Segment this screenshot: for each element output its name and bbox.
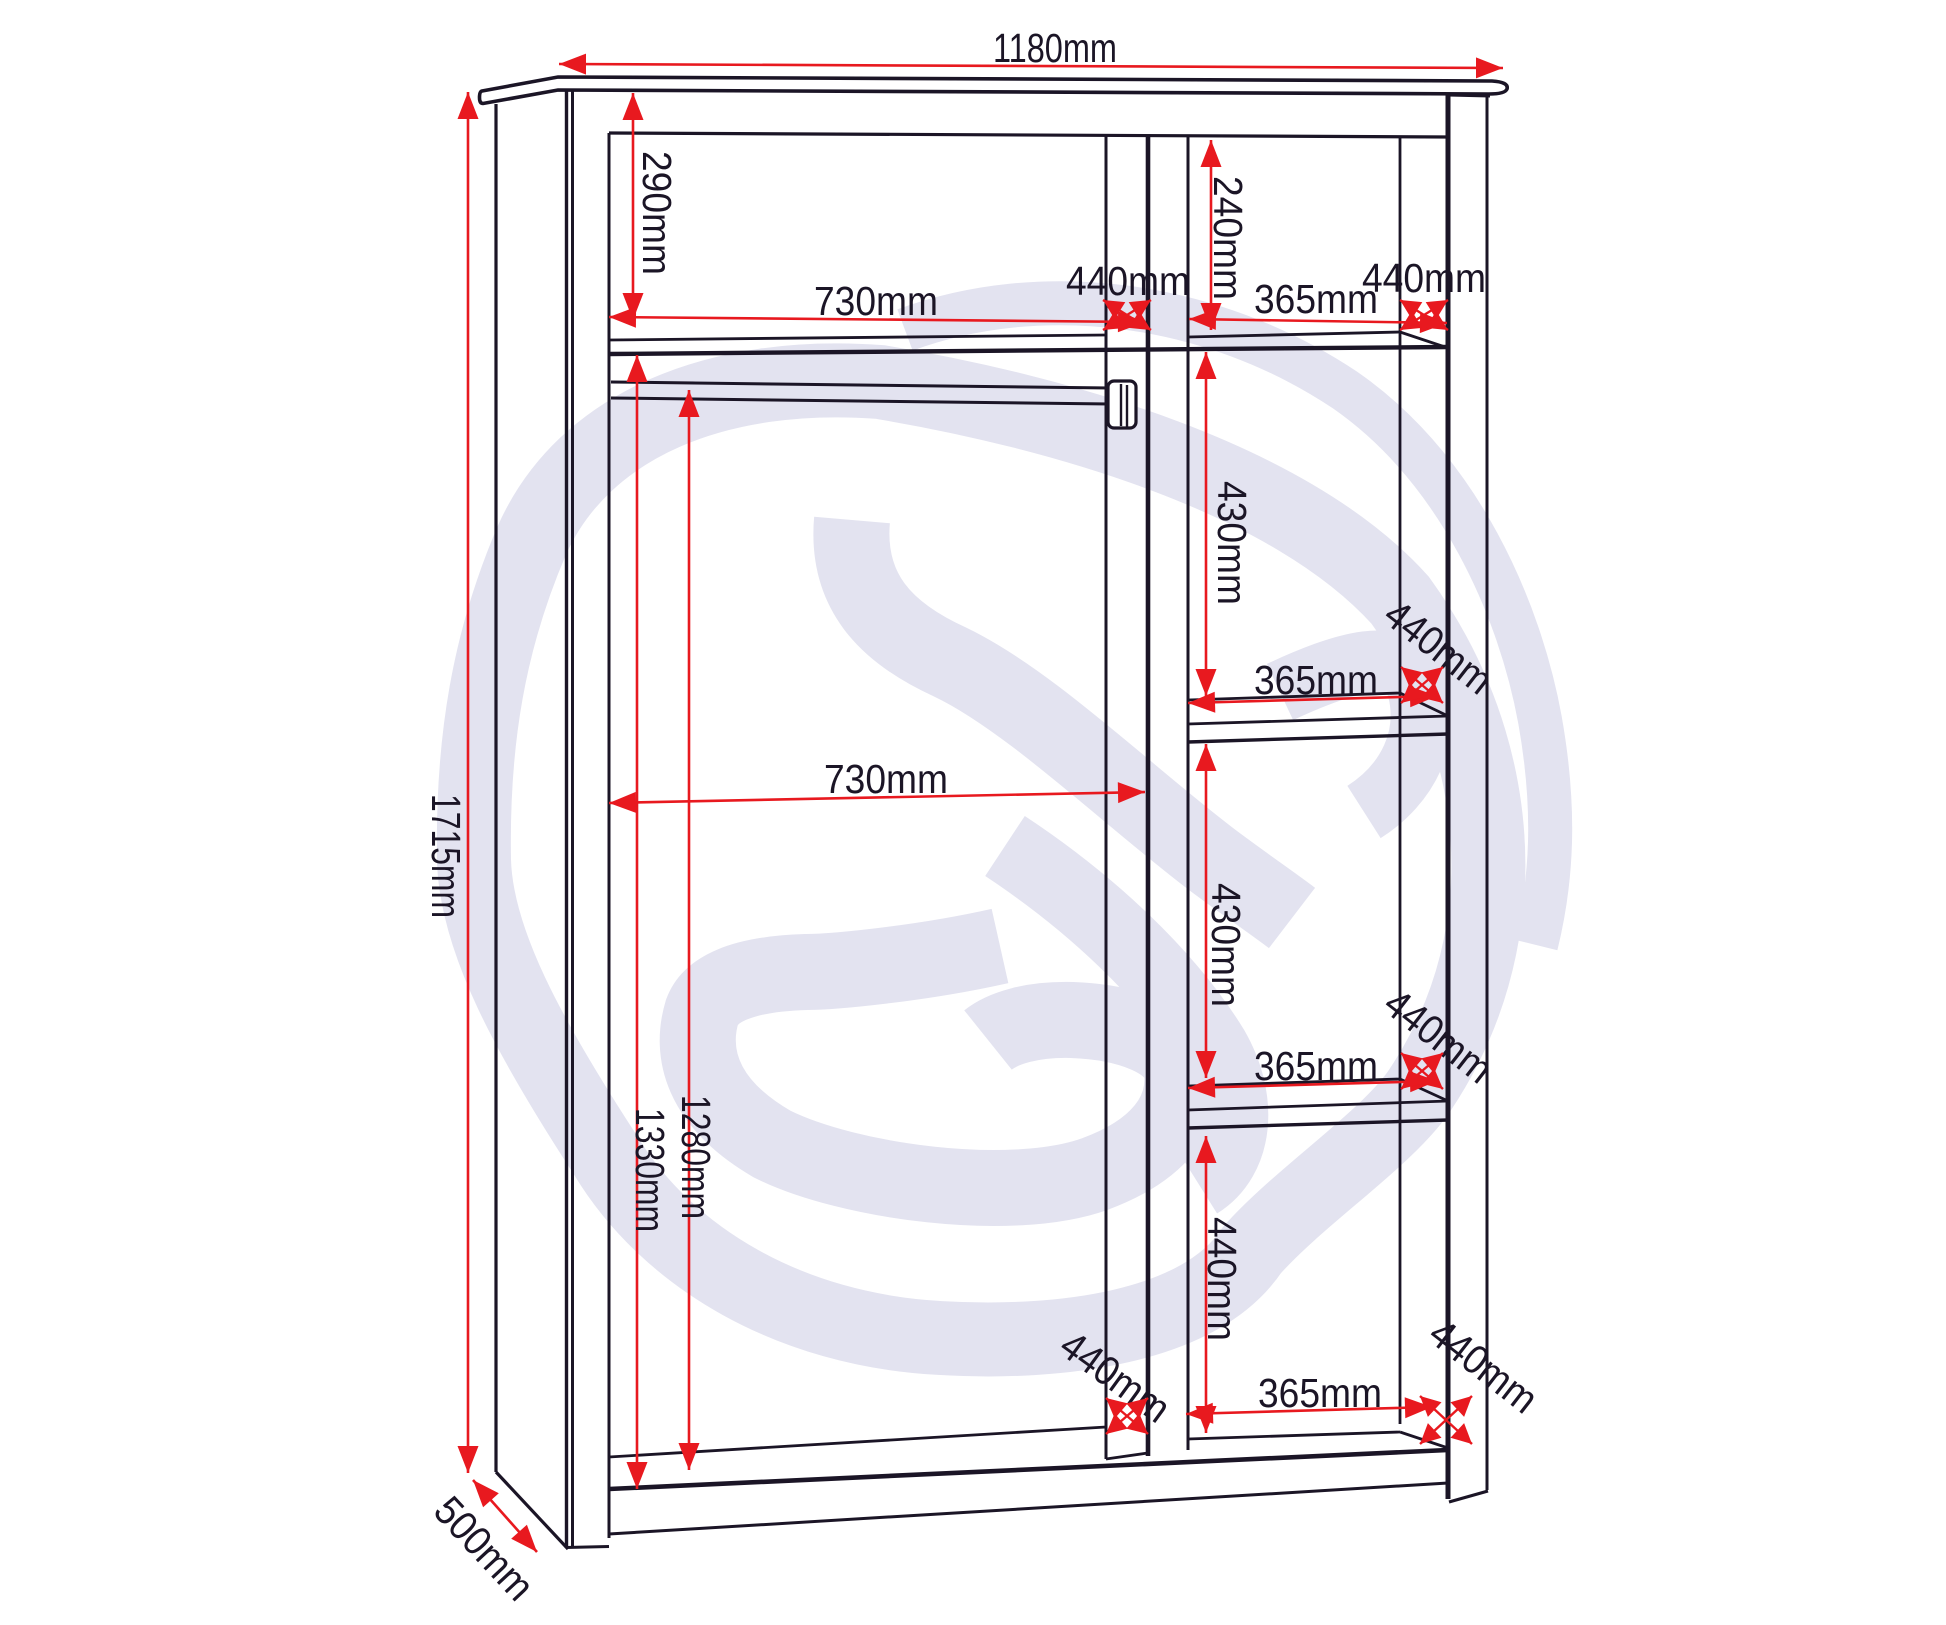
svg-text:430mm: 430mm	[1203, 883, 1249, 1007]
svg-text:440mm: 440mm	[1066, 258, 1190, 304]
svg-text:240mm: 240mm	[1205, 176, 1251, 300]
svg-text:440mm: 440mm	[1199, 1217, 1245, 1341]
svg-text:365mm: 365mm	[1254, 276, 1378, 322]
svg-text:730mm: 730mm	[814, 278, 938, 324]
svg-text:1715mm: 1715mm	[423, 794, 469, 918]
svg-text:1280mm: 1280mm	[673, 1095, 719, 1219]
svg-text:365mm: 365mm	[1254, 657, 1378, 703]
svg-text:730mm: 730mm	[824, 756, 948, 802]
svg-text:440mm: 440mm	[1362, 255, 1486, 301]
svg-text:1180mm: 1180mm	[993, 25, 1117, 71]
svg-text:430mm: 430mm	[1209, 481, 1255, 605]
svg-text:365mm: 365mm	[1258, 1370, 1382, 1416]
svg-text:365mm: 365mm	[1254, 1043, 1378, 1089]
svg-text:290mm: 290mm	[634, 151, 680, 275]
svg-text:1330mm: 1330mm	[627, 1108, 673, 1232]
